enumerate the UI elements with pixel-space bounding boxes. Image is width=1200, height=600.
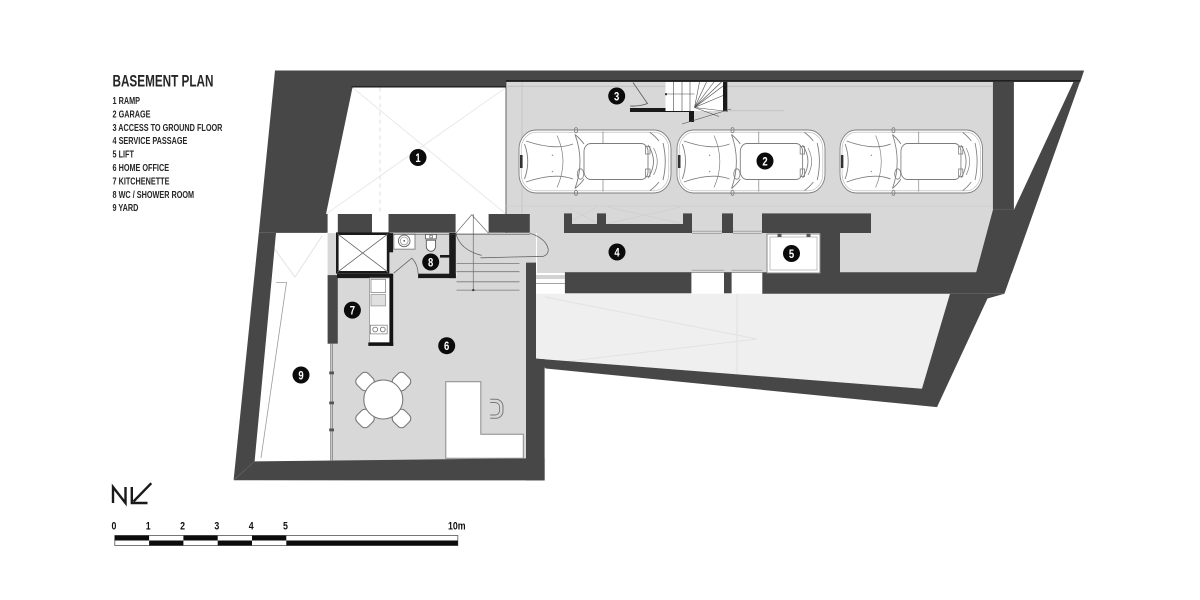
svg-text:BASEMENT PLAN: BASEMENT PLAN <box>113 73 214 91</box>
svg-text:5 LIFT: 5 LIFT <box>113 148 135 160</box>
svg-text:3: 3 <box>614 90 619 103</box>
svg-text:8 WC / SHOWER ROOM: 8 WC / SHOWER ROOM <box>113 189 195 201</box>
svg-text:5: 5 <box>283 521 288 533</box>
svg-text:4: 4 <box>249 521 254 533</box>
svg-text:5: 5 <box>789 248 794 261</box>
svg-text:2 GARAGE: 2 GARAGE <box>113 108 151 120</box>
svg-text:3: 3 <box>214 521 219 533</box>
svg-text:4 SERVICE PASSAGE: 4 SERVICE PASSAGE <box>113 135 188 147</box>
svg-text:9: 9 <box>298 369 303 382</box>
svg-text:2: 2 <box>762 155 767 168</box>
svg-text:6 HOME OFFICE: 6 HOME OFFICE <box>113 162 170 174</box>
svg-text:6: 6 <box>444 340 449 353</box>
svg-text:7 KITCHENETTE: 7 KITCHENETTE <box>113 175 170 187</box>
svg-text:9 YARD: 9 YARD <box>113 202 139 214</box>
svg-text:1 RAMP: 1 RAMP <box>113 95 141 107</box>
svg-text:3 ACCESS TO GROUND FLOOR: 3 ACCESS TO GROUND FLOOR <box>113 122 223 134</box>
svg-text:4: 4 <box>614 246 620 259</box>
svg-text:2: 2 <box>180 521 185 533</box>
svg-text:10m: 10m <box>448 521 466 533</box>
svg-text:7: 7 <box>350 304 355 317</box>
svg-text:1: 1 <box>415 152 420 165</box>
svg-text:0: 0 <box>112 521 117 533</box>
svg-text:8: 8 <box>428 256 433 269</box>
svg-text:1: 1 <box>146 521 151 533</box>
